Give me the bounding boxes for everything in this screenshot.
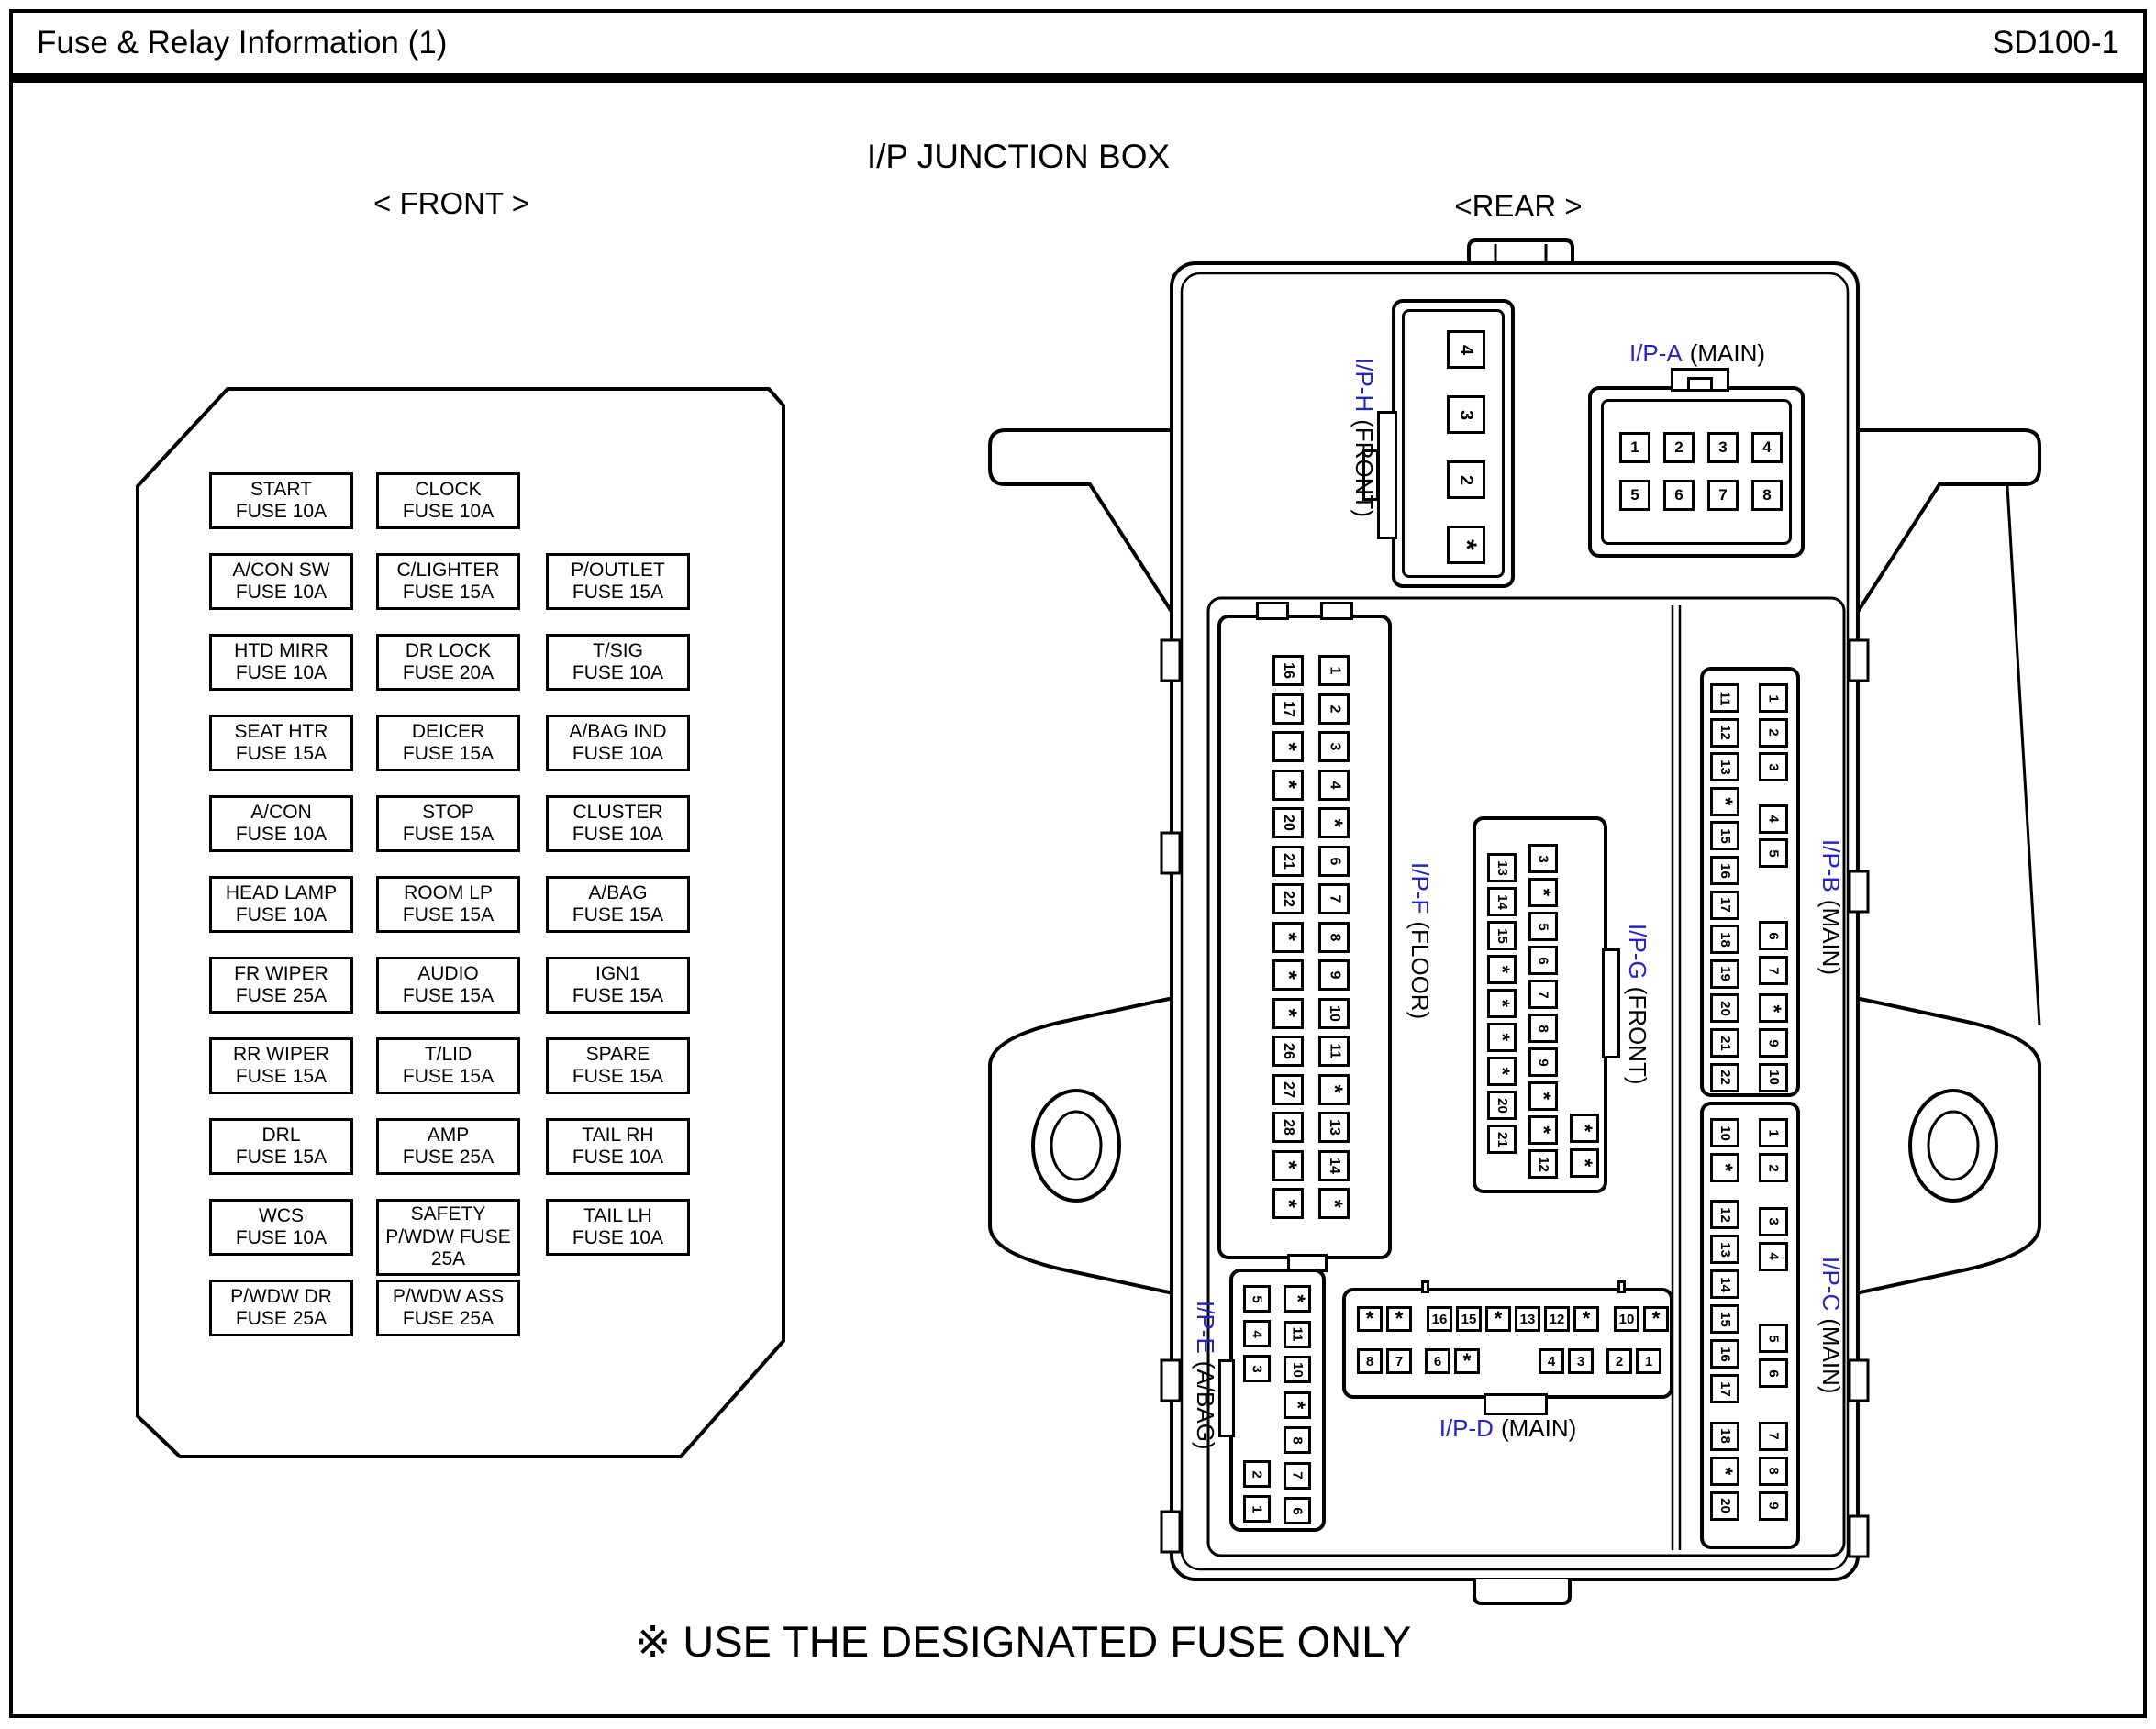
pin-15: 15 (1710, 821, 1739, 850)
fuse-cell: SEAT HTR FUSE 15A (209, 715, 353, 771)
fuse-cell: P/WDW ASS FUSE 25A (376, 1280, 520, 1336)
pin-13: 13 (1487, 853, 1517, 882)
pin-unused: * (1570, 1148, 1599, 1178)
pin-7: 7 (1386, 1348, 1412, 1374)
fuse-cell: HTD MIRR FUSE 10A (209, 634, 353, 691)
fuse-cell: CLOCK FUSE 10A (376, 472, 520, 529)
page-code: SD100-1 (1993, 25, 2119, 61)
rear-junction-box: 432* I/P-H(FRONT) 12345678 I/P-A(MAIN) 1… (945, 229, 2128, 1605)
pin-11: 11 (1284, 1321, 1311, 1348)
fuse-cell: SAFETY P/WDW FUSE 25A (376, 1199, 520, 1276)
fuse-cell: DEICER FUSE 15A (376, 715, 520, 771)
pin-unused: * (1710, 1457, 1739, 1486)
pin-2: 2 (1759, 718, 1788, 748)
pin-20: 20 (1710, 993, 1739, 1023)
pin-3: 3 (1707, 432, 1739, 463)
page-title: Fuse & Relay Information (1) (37, 25, 447, 61)
pin-15: 15 (1487, 921, 1517, 950)
pin-13: 13 (1710, 752, 1739, 781)
connector-label-ip-h: I/P-H(FRONT) (1350, 358, 1378, 517)
pin-unused: * (1318, 807, 1350, 838)
pin-2: 2 (1663, 432, 1695, 463)
pin-20: 20 (1272, 807, 1304, 838)
pin-unused: * (1485, 1306, 1511, 1332)
front-view-label: < FRONT > (314, 186, 589, 221)
connector-label-ip-f: I/P-F(FLOOR) (1406, 862, 1434, 1019)
pin-3: 3 (1759, 752, 1788, 781)
page-header: Fuse & Relay Information (1) SD100-1 (9, 9, 2147, 83)
pin-16: 16 (1710, 1339, 1739, 1369)
connector-ip-h: 432* (1392, 299, 1515, 588)
tab (1484, 1393, 1548, 1415)
pin-8: 8 (1528, 1014, 1558, 1043)
pin-10: 10 (1284, 1356, 1311, 1383)
pin-unused: * (1528, 878, 1558, 907)
pin-22: 22 (1710, 1063, 1739, 1092)
pin-5: 5 (1759, 1324, 1788, 1353)
pin-5: 5 (1243, 1285, 1271, 1313)
connector-ip-g: 131415****20213*56789**12** (1473, 816, 1607, 1193)
pin-unused: * (1487, 1023, 1517, 1052)
pin-15: 15 (1710, 1304, 1739, 1334)
pin-unused: * (1272, 959, 1304, 991)
fuse-cell: AMP FUSE 25A (376, 1118, 520, 1175)
fuse-cell: A/BAG IND FUSE 10A (546, 715, 690, 771)
pin-10: 10 (1710, 1118, 1739, 1147)
pin-12: 12 (1544, 1306, 1570, 1332)
pin-2: 2 (1759, 1153, 1788, 1182)
pin-unused: * (1272, 1150, 1304, 1181)
pin-8: 8 (1759, 1457, 1788, 1486)
pin-7: 7 (1707, 480, 1739, 511)
pin-12: 12 (1710, 1200, 1739, 1229)
connector-ip-b: 111213*15161718192021221234567*910 (1700, 667, 1800, 1097)
pin-unused: * (1454, 1348, 1480, 1374)
fuse-cell: IGN1 FUSE 15A (546, 957, 690, 1014)
connector-ip-f: 1617**202122***262728**1234*67891011*131… (1217, 615, 1392, 1259)
rear-view-label: <REAR > (1381, 189, 1656, 224)
fuse-cell: ROOM LP FUSE 15A (376, 876, 520, 933)
pin-2: 2 (1606, 1348, 1632, 1374)
pin-7: 7 (1318, 883, 1350, 914)
connector-label-ip-d: I/P-D(MAIN) (1342, 1414, 1673, 1443)
service-manual-page: Fuse & Relay Information (1) SD100-1 I/P… (0, 0, 2156, 1729)
pin-9: 9 (1318, 959, 1350, 991)
pin-1: 1 (1318, 655, 1350, 686)
fuse-cell: STOP FUSE 15A (376, 795, 520, 852)
pin-unused: * (1528, 1115, 1558, 1145)
pin-7: 7 (1759, 956, 1788, 985)
pin-6: 6 (1759, 921, 1788, 950)
pin-4: 4 (1539, 1348, 1564, 1374)
fuse-cell: DRL FUSE 15A (209, 1118, 353, 1175)
fuse-cell: FR WIPER FUSE 25A (209, 957, 353, 1014)
pin-unused: * (1487, 1057, 1517, 1086)
pin-11: 11 (1710, 683, 1739, 713)
pin-unused: * (1528, 1081, 1558, 1111)
tab (1320, 602, 1353, 620)
pin-14: 14 (1318, 1150, 1350, 1181)
pin-1: 1 (1243, 1495, 1271, 1523)
pin-10: 10 (1614, 1306, 1639, 1332)
front-fuse-panel: START FUSE 10ACLOCK FUSE 10AA/CON SW FUS… (136, 387, 785, 1458)
fuse-cell: CLUSTER FUSE 10A (546, 795, 690, 852)
pin-4: 4 (1447, 330, 1485, 369)
pin-unused: * (1272, 1188, 1304, 1219)
connector-ip-a: 12345678 (1588, 386, 1805, 558)
pin-unused: * (1272, 922, 1304, 953)
tick (1421, 1280, 1429, 1293)
connector-label-ip-c: I/P-C(MAIN) (1817, 1257, 1845, 1394)
pin-2: 2 (1447, 460, 1485, 499)
pin-unused: * (1272, 731, 1304, 762)
pin-9: 9 (1528, 1047, 1558, 1077)
pin-8: 8 (1318, 922, 1350, 953)
pin-5: 5 (1619, 480, 1650, 511)
pin-20: 20 (1487, 1091, 1517, 1120)
pin-12: 12 (1528, 1149, 1558, 1179)
pin-unused: * (1570, 1114, 1599, 1143)
pin-1: 1 (1759, 1118, 1788, 1147)
pin-1: 1 (1636, 1348, 1661, 1374)
pin-26: 26 (1272, 1036, 1304, 1067)
pin-3: 3 (1243, 1355, 1271, 1382)
pin-19: 19 (1710, 959, 1739, 989)
connector-ip-e: 54321*1110*876 (1229, 1269, 1326, 1532)
pin-unused: * (1284, 1285, 1311, 1313)
pin-8: 8 (1284, 1426, 1311, 1454)
fuse-cell: A/BAG FUSE 15A (546, 876, 690, 933)
pin-17: 17 (1710, 1374, 1739, 1403)
pin-unused: * (1487, 955, 1517, 984)
pin-16: 16 (1272, 655, 1304, 686)
pin-3: 3 (1318, 731, 1350, 762)
fuse-cell: A/CON FUSE 10A (209, 795, 353, 852)
pin-15: 15 (1456, 1306, 1482, 1332)
pin-18: 18 (1710, 925, 1739, 954)
pin-6: 6 (1318, 846, 1350, 877)
pin-unused: * (1272, 998, 1304, 1029)
pin-4: 4 (1759, 804, 1788, 834)
latch (1377, 411, 1397, 539)
pin-4: 4 (1759, 1242, 1788, 1271)
pin-17: 17 (1272, 693, 1304, 725)
pin-7: 7 (1284, 1462, 1311, 1490)
pin-11: 11 (1318, 1036, 1350, 1067)
pin-2: 2 (1243, 1460, 1271, 1488)
connector-ip-c: 10*12131415161718*20123456789 (1700, 1102, 1800, 1549)
pin-27: 27 (1272, 1074, 1304, 1105)
pin-unused: * (1643, 1306, 1669, 1332)
fuse-cell: A/CON SW FUSE 10A (209, 553, 353, 610)
pin-28: 28 (1272, 1112, 1304, 1143)
latch (1602, 948, 1620, 1058)
fuse-cell: SPARE FUSE 15A (546, 1037, 690, 1094)
fuse-cell: DR LOCK FUSE 20A (376, 634, 520, 691)
pin-unused: * (1447, 526, 1485, 564)
fuse-cell: P/OUTLET FUSE 15A (546, 553, 690, 610)
pin-unused: * (1573, 1306, 1599, 1332)
pin-21: 21 (1487, 1125, 1517, 1154)
latch (1218, 1359, 1235, 1437)
pin-6: 6 (1528, 946, 1558, 975)
pin-4: 4 (1751, 432, 1783, 463)
pin-18: 18 (1710, 1422, 1739, 1451)
connector-label-ip-a: I/P-A(MAIN) (1569, 339, 1826, 368)
pin-6: 6 (1425, 1348, 1450, 1374)
tick (1617, 1280, 1626, 1293)
latch (1687, 377, 1713, 392)
footer-note: ※ USE THE DESIGNATED FUSE ONLY (0, 1616, 2046, 1668)
pin-22: 22 (1272, 883, 1304, 914)
pin-1: 1 (1759, 683, 1788, 713)
pin-21: 21 (1272, 846, 1304, 877)
pin-3: 3 (1447, 395, 1485, 434)
pin-2: 2 (1318, 693, 1350, 725)
fuse-cell: HEAD LAMP FUSE 10A (209, 876, 353, 933)
pin-14: 14 (1487, 887, 1517, 916)
pin-14: 14 (1710, 1269, 1739, 1299)
pin-3: 3 (1759, 1207, 1788, 1236)
pin-8: 8 (1751, 480, 1783, 511)
pin-unused: * (1710, 1153, 1739, 1182)
pin-unused: * (1487, 989, 1517, 1018)
fuse-cell: P/WDW DR FUSE 25A (209, 1280, 353, 1336)
connector-label-ip-e: I/P-E(A/BAG) (1191, 1301, 1219, 1450)
pin-3: 3 (1528, 844, 1558, 873)
pin-7: 7 (1759, 1422, 1788, 1451)
pin-12: 12 (1710, 718, 1739, 748)
pin-3: 3 (1568, 1348, 1594, 1374)
pin-13: 13 (1515, 1306, 1540, 1332)
fuse-cell: TAIL LH FUSE 10A (546, 1199, 690, 1256)
fuse-cell: RR WIPER FUSE 15A (209, 1037, 353, 1094)
fuse-cell: TAIL RH FUSE 10A (546, 1118, 690, 1175)
pin-9: 9 (1759, 1491, 1788, 1521)
pin-10: 10 (1759, 1063, 1788, 1092)
pin-unused: * (1318, 1074, 1350, 1105)
connector-label-ip-b: I/P-B(MAIN) (1817, 839, 1845, 975)
fuse-cell: T/SIG FUSE 10A (546, 634, 690, 691)
connector-ip-d: **1615*1312*10*876*4321 (1342, 1288, 1673, 1399)
pin-4: 4 (1243, 1320, 1271, 1347)
pin-20: 20 (1710, 1491, 1739, 1521)
pin-unused: * (1759, 993, 1788, 1023)
tab (1256, 602, 1289, 620)
pin-16: 16 (1427, 1306, 1452, 1332)
pin-unused: * (1272, 770, 1304, 801)
fuse-cell: T/LID FUSE 15A (376, 1037, 520, 1094)
pin-13: 13 (1710, 1235, 1739, 1264)
pin-21: 21 (1710, 1028, 1739, 1058)
pin-17: 17 (1710, 891, 1739, 920)
pin-5: 5 (1528, 912, 1558, 941)
pin-6: 6 (1284, 1497, 1311, 1524)
pin-4: 4 (1318, 770, 1350, 801)
pin-unused: * (1710, 787, 1739, 816)
pin-unused: * (1318, 1188, 1350, 1219)
pin-10: 10 (1318, 998, 1350, 1029)
pin-unused: * (1386, 1306, 1412, 1332)
fuse-cell: C/LIGHTER FUSE 15A (376, 553, 520, 610)
connector-ip-a-inner (1601, 399, 1792, 545)
pin-13: 13 (1318, 1112, 1350, 1143)
pin-unused: * (1357, 1306, 1383, 1332)
fuse-cell: START FUSE 10A (209, 472, 353, 529)
pin-7: 7 (1528, 980, 1558, 1009)
fuse-cell: AUDIO FUSE 15A (376, 957, 520, 1014)
pin-1: 1 (1619, 432, 1650, 463)
pin-8: 8 (1357, 1348, 1383, 1374)
pin-unused: * (1284, 1391, 1311, 1419)
pin-5: 5 (1759, 838, 1788, 868)
fuse-cell: WCS FUSE 10A (209, 1199, 353, 1256)
diagram-title: I/P JUNCTION BOX (826, 138, 1211, 176)
pin-6: 6 (1759, 1358, 1788, 1388)
pin-9: 9 (1759, 1028, 1788, 1058)
pin-6: 6 (1663, 480, 1695, 511)
pin-16: 16 (1710, 856, 1739, 885)
connector-label-ip-g: I/P-G(FRONT) (1623, 924, 1651, 1085)
